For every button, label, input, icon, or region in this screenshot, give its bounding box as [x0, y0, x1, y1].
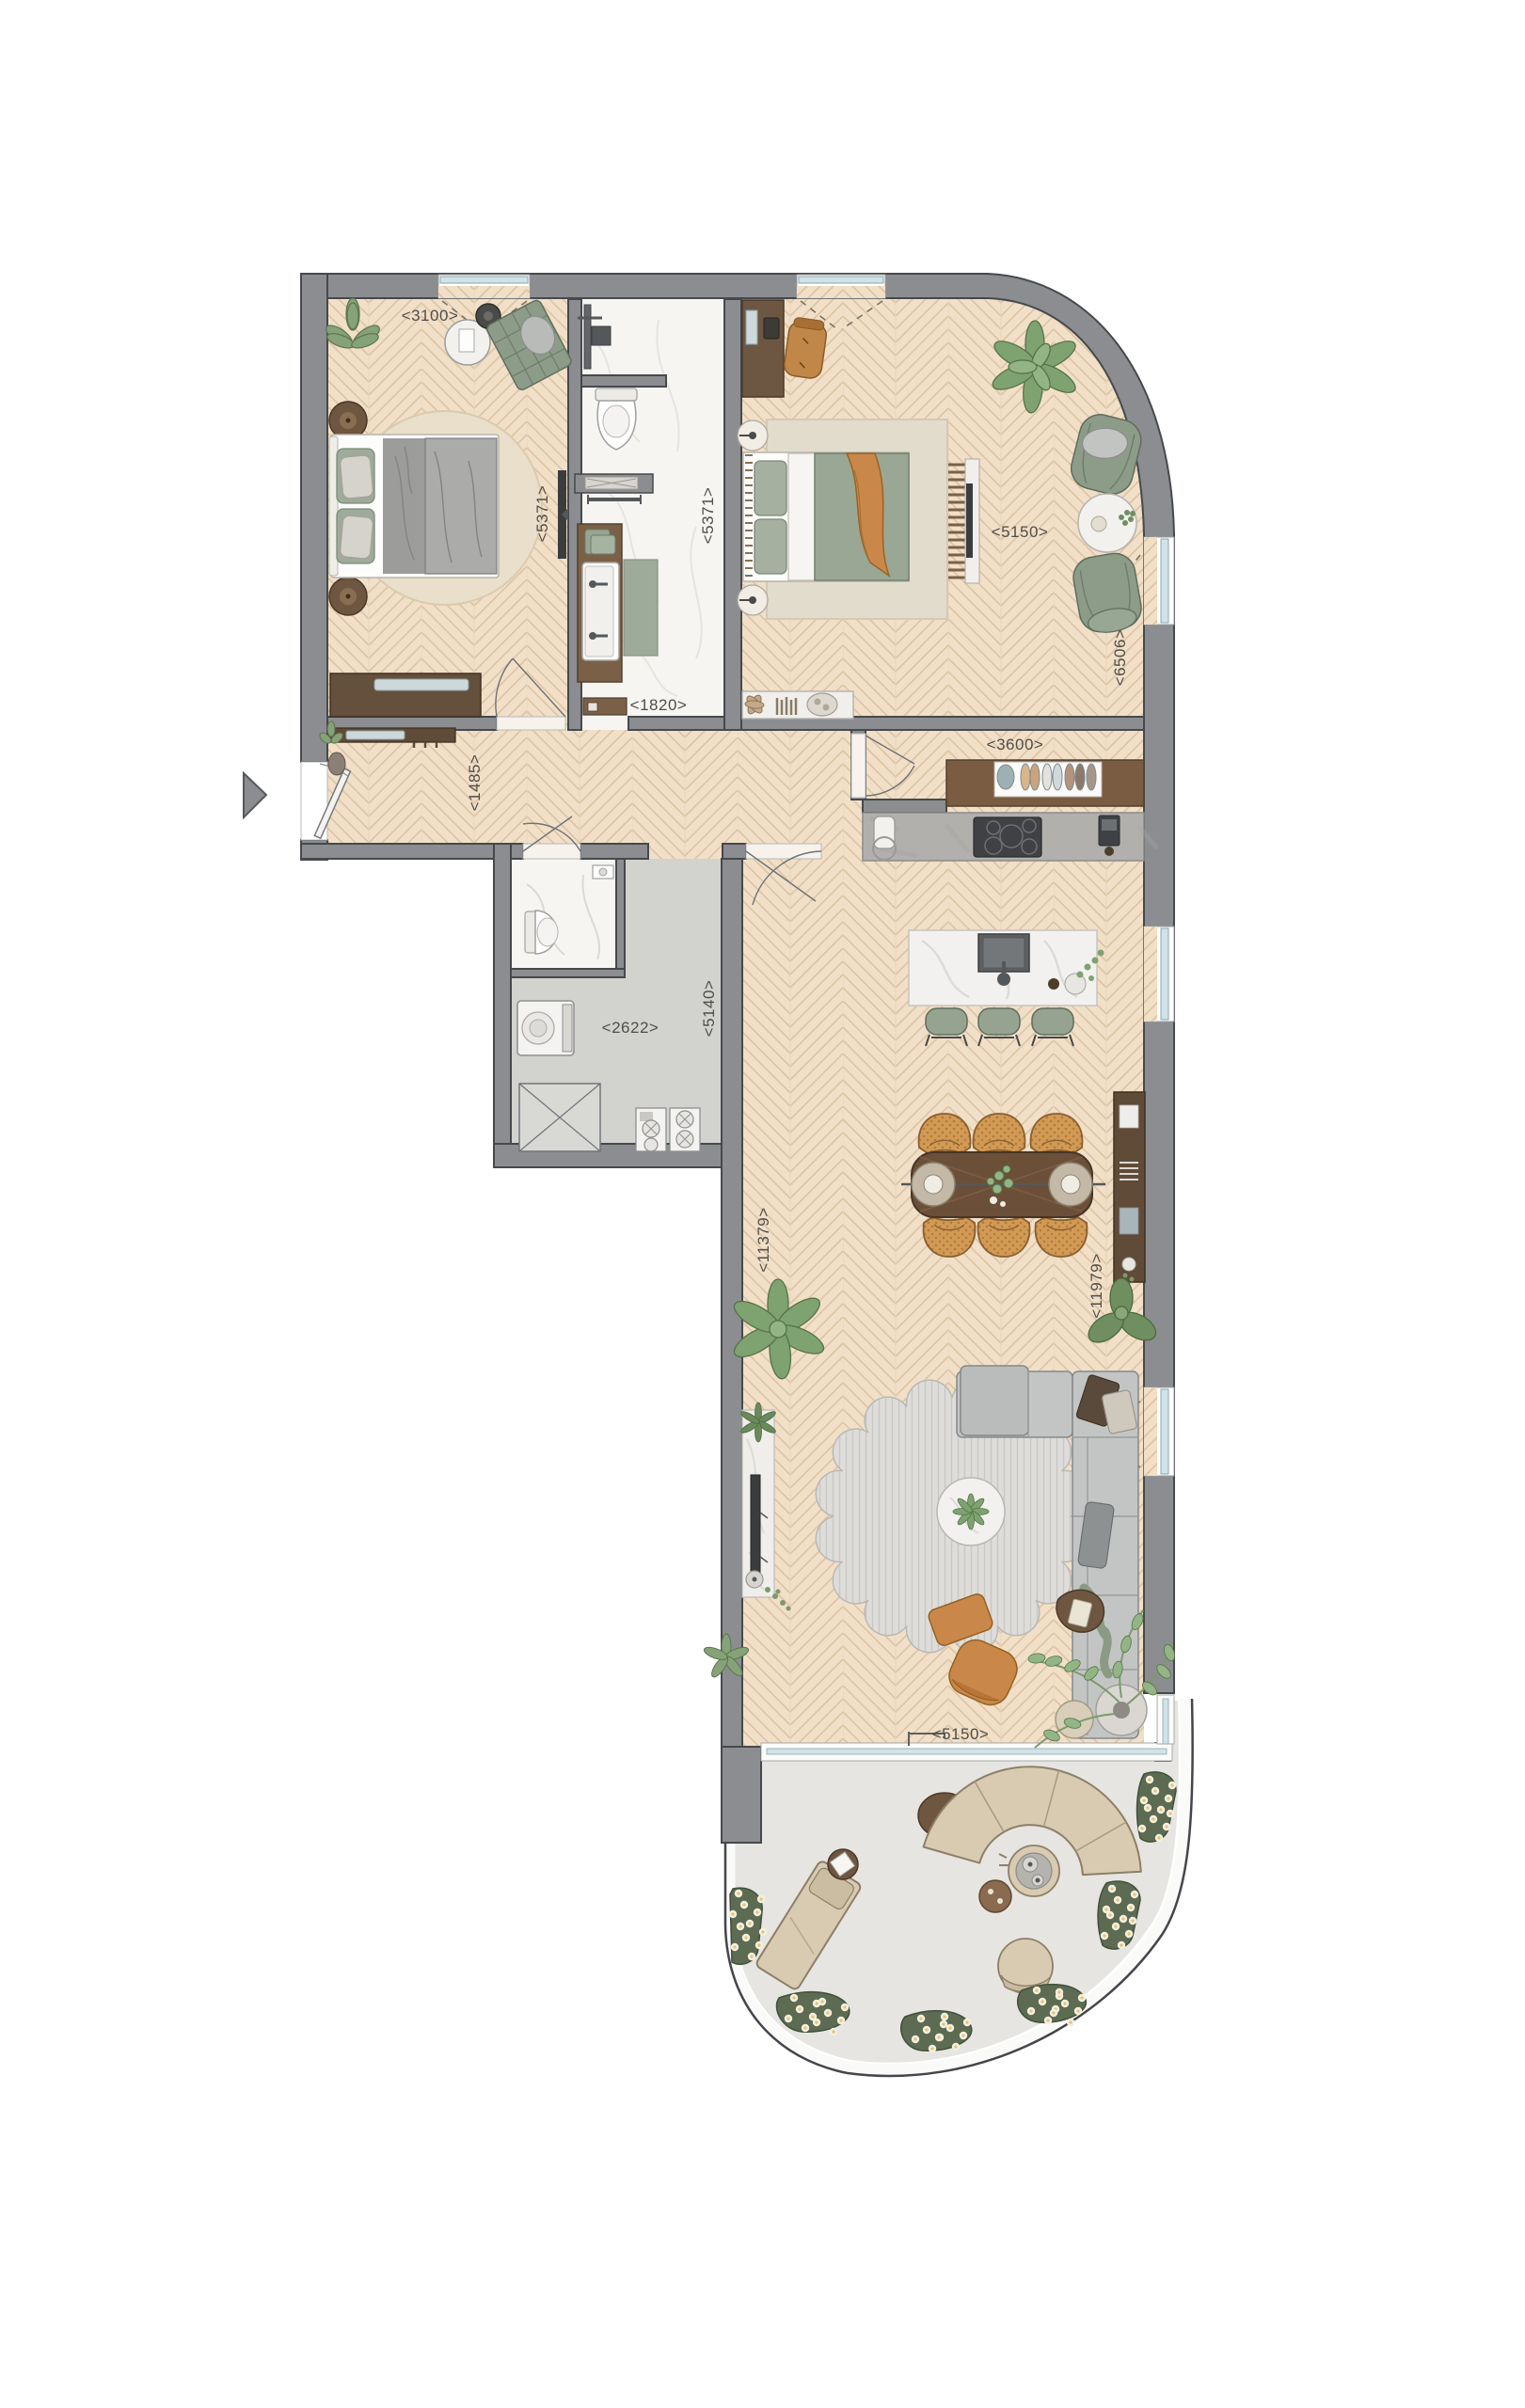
- svg-text:<5150>: <5150>: [932, 1725, 990, 1743]
- svg-text:<3100>: <3100>: [402, 307, 459, 325]
- svg-text:<1820>: <1820>: [630, 696, 688, 714]
- svg-text:<11379>: <11379>: [755, 1207, 772, 1272]
- svg-text:<5371>: <5371>: [699, 487, 717, 545]
- svg-text:<2622>: <2622>: [602, 1019, 659, 1037]
- svg-text:<5371>: <5371>: [533, 485, 551, 543]
- svg-text:<11979>: <11979>: [1088, 1253, 1105, 1318]
- svg-text:<6506>: <6506>: [1111, 629, 1129, 687]
- svg-text:<5150>: <5150>: [992, 523, 1049, 541]
- svg-text:<5140>: <5140>: [700, 980, 718, 1038]
- svg-text:<1485>: <1485>: [466, 754, 484, 812]
- svg-text:<3600>: <3600>: [987, 736, 1044, 753]
